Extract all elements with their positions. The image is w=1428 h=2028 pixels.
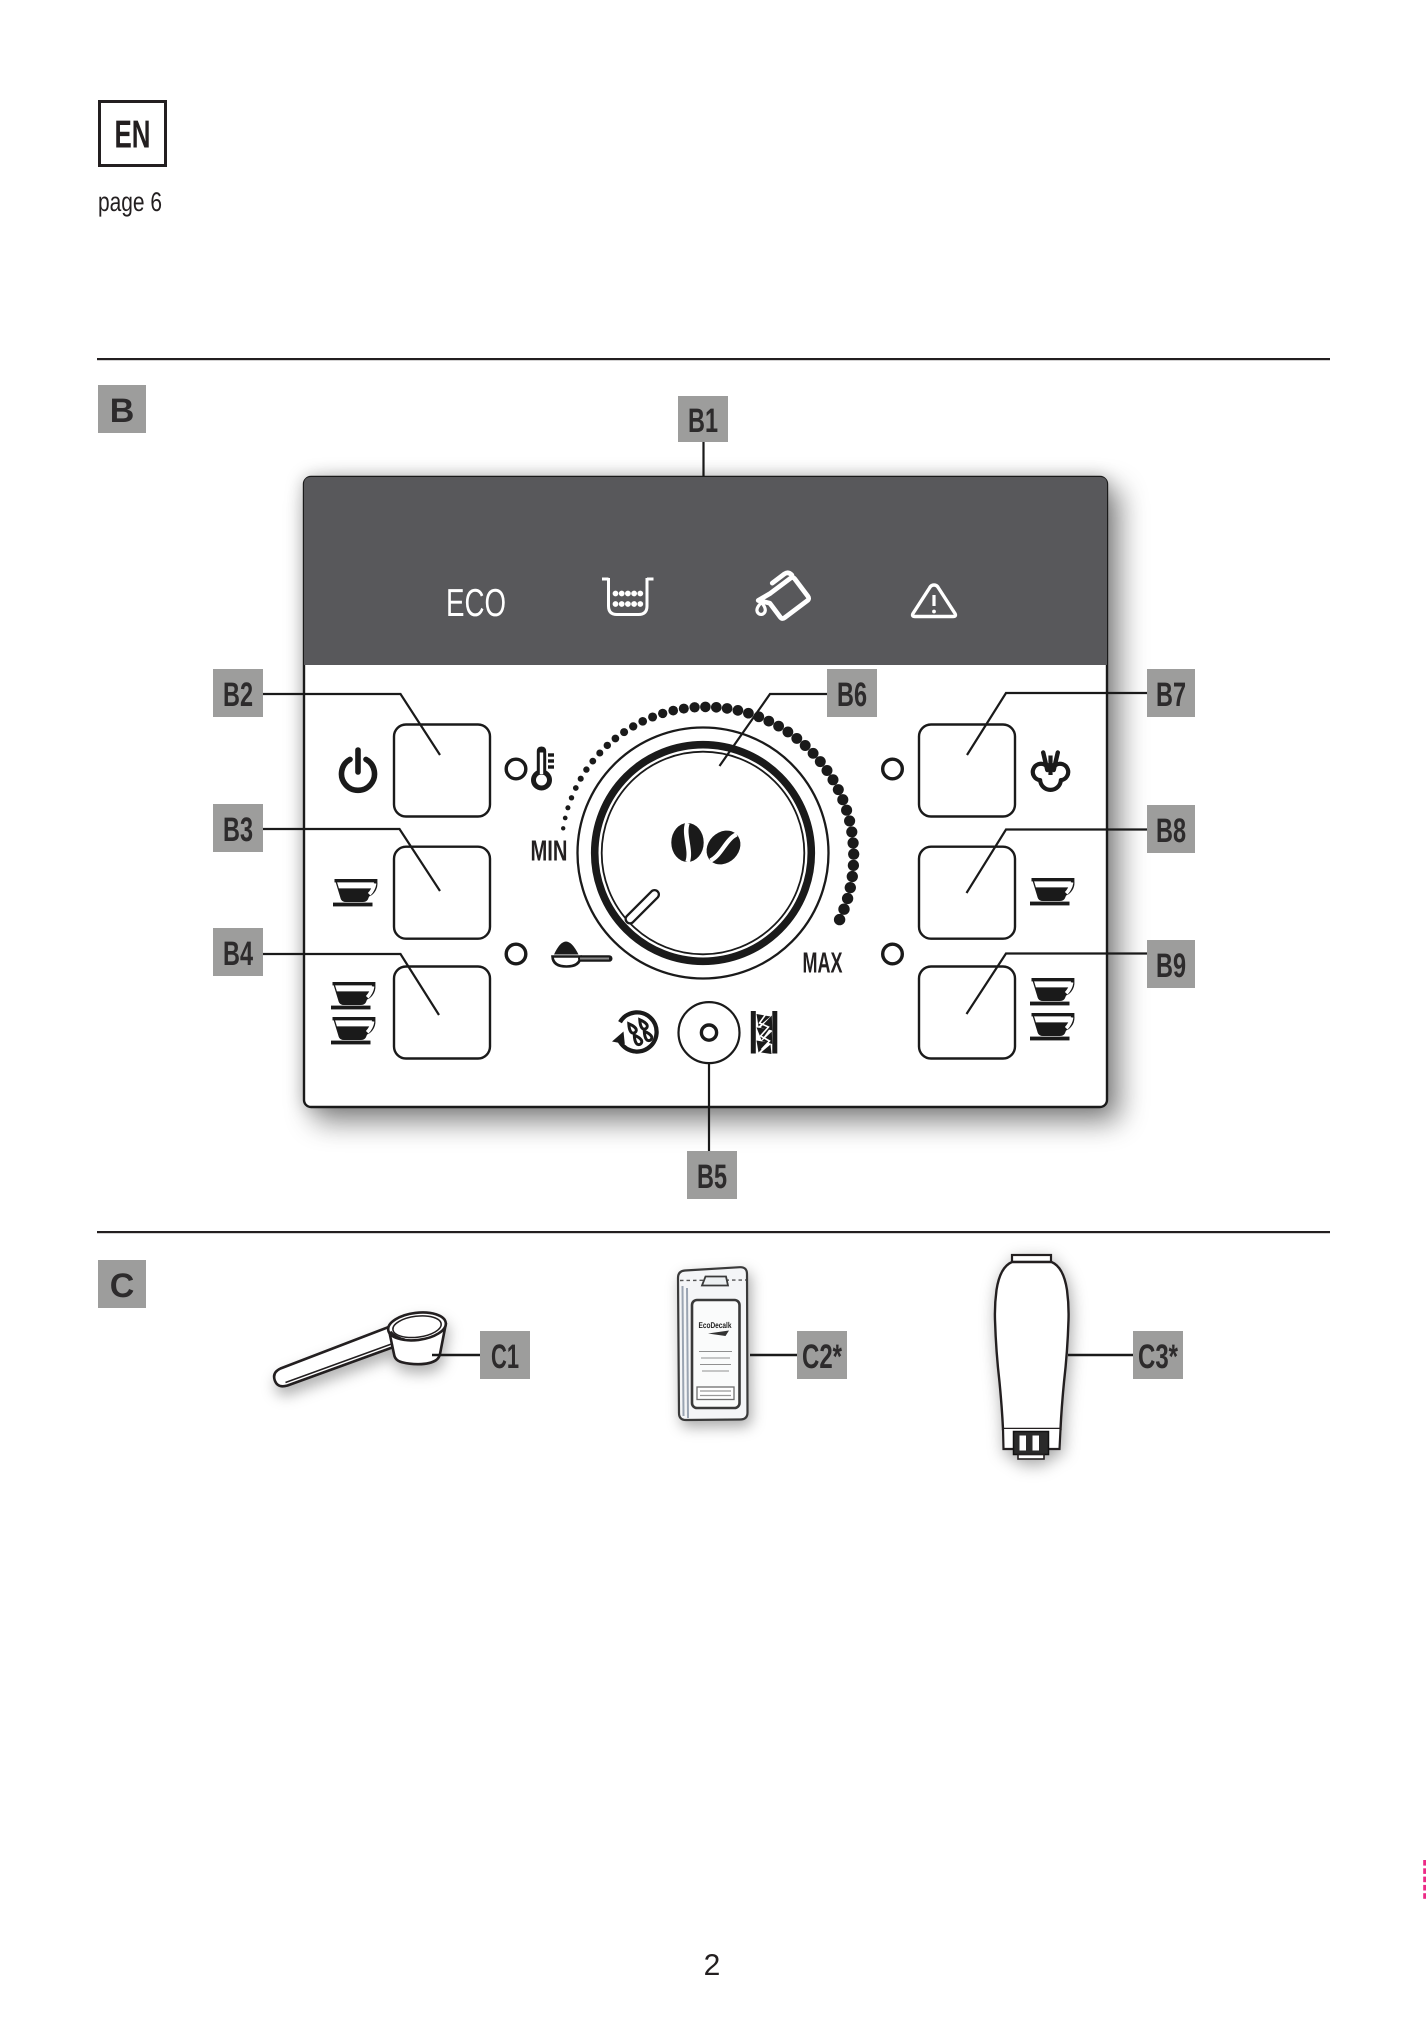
- svg-text:page 6: page 6: [98, 187, 162, 217]
- svg-text:C2*: C2*: [802, 1338, 843, 1376]
- svg-text:C: C: [110, 1267, 135, 1305]
- svg-text:MAX: MAX: [803, 948, 843, 980]
- svg-text:B2: B2: [223, 676, 253, 714]
- svg-text:B1: B1: [688, 402, 718, 440]
- svg-text:B6: B6: [837, 676, 867, 714]
- svg-text:EcoDecalk: EcoDecalk: [699, 1320, 732, 1330]
- svg-text:C1: C1: [491, 1338, 519, 1376]
- svg-text:B9: B9: [1156, 947, 1186, 985]
- svg-text:EN: EN: [115, 114, 151, 157]
- svg-text:C3*: C3*: [1138, 1338, 1179, 1376]
- svg-text:2: 2: [704, 1949, 721, 1982]
- svg-text:ECO: ECO: [446, 582, 506, 625]
- svg-text:B3: B3: [223, 811, 253, 849]
- svg-text:B7: B7: [1156, 676, 1186, 714]
- svg-text:MIN: MIN: [531, 836, 568, 868]
- svg-text:B5: B5: [697, 1158, 727, 1196]
- svg-text:B4: B4: [223, 935, 253, 973]
- svg-text:B8: B8: [1156, 812, 1186, 850]
- svg-text:B: B: [110, 392, 135, 430]
